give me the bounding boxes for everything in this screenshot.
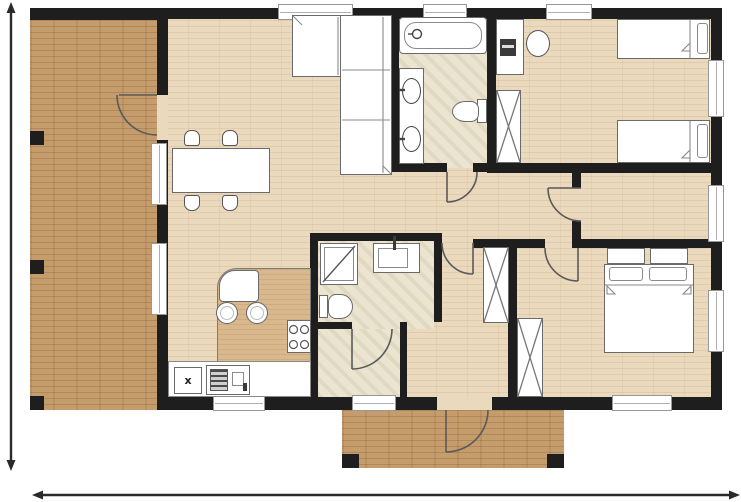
dining-chair	[184, 195, 200, 211]
entry-door-opening	[437, 397, 492, 410]
cooktop	[287, 320, 311, 353]
nightstand	[650, 248, 688, 264]
porch-post	[342, 454, 359, 468]
window	[213, 395, 265, 411]
sink-drainer	[210, 369, 228, 391]
breakfast-bar	[219, 270, 259, 302]
window	[151, 243, 167, 315]
wall-bathroom-bottom	[390, 163, 447, 172]
arrow-right-icon	[729, 491, 740, 500]
arrow-down-icon	[7, 460, 16, 471]
deck-door-opening	[157, 95, 168, 140]
pillow	[697, 124, 708, 158]
deck-post	[30, 260, 44, 274]
washbasin-inner	[378, 248, 408, 268]
dining-chair	[222, 195, 238, 211]
wall-showerroom-stub	[318, 322, 352, 329]
dining-table	[172, 148, 270, 193]
arrow-left-icon	[32, 491, 43, 500]
appliance-x: x	[174, 367, 202, 394]
window	[708, 60, 724, 117]
wardrobe	[496, 90, 521, 163]
nightstand	[607, 248, 645, 264]
wall-master-top	[578, 239, 722, 248]
pillow	[649, 267, 687, 281]
bathtub-inner	[404, 22, 482, 49]
wall-bathroom-right	[487, 16, 496, 163]
wall-showerroom-right	[434, 241, 442, 322]
toilet-bowl	[452, 101, 479, 122]
wash-basin	[402, 78, 421, 104]
wash-basin	[402, 126, 421, 152]
shower-room-vestibule-floor	[318, 329, 400, 397]
desk-chair	[526, 30, 550, 57]
wardrobe	[517, 318, 543, 397]
dining-chair	[222, 130, 238, 146]
wall-master-left	[508, 248, 517, 397]
sink-faucet	[243, 383, 247, 391]
sofa-chaise	[340, 15, 392, 175]
deck-post	[30, 396, 44, 410]
shower-inner	[324, 247, 354, 281]
window	[352, 395, 396, 411]
entry-porch	[342, 410, 564, 468]
toilet-bowl	[328, 294, 353, 319]
deck-terrace	[30, 8, 157, 410]
window	[546, 4, 592, 20]
wall-bedroom1-bottom	[487, 163, 722, 173]
basin-faucet	[393, 236, 396, 250]
porch-post	[547, 454, 564, 468]
wall-showerroom-top	[310, 233, 442, 241]
dining-chair	[184, 130, 200, 146]
pillow	[697, 23, 708, 54]
wall-exterior-left	[157, 8, 168, 410]
bar-stool	[246, 302, 268, 324]
arrow-up-icon	[7, 2, 16, 13]
window	[708, 290, 724, 352]
wall-vestibule-right	[400, 322, 407, 397]
wardrobe	[483, 247, 509, 323]
floor-plan: x	[0, 0, 741, 502]
deck-post	[30, 131, 44, 145]
deck-top-beam	[30, 8, 157, 20]
appliance-x-label: x	[184, 374, 191, 387]
desk-laptop-stripe	[502, 45, 514, 48]
window	[612, 395, 672, 411]
wall-master-top	[508, 239, 545, 248]
toilet-tank	[319, 295, 328, 318]
wall-showerroom-left	[310, 241, 318, 397]
pillow	[609, 267, 643, 281]
bar-stool	[216, 302, 238, 324]
wall-smallroom-left	[572, 173, 581, 188]
window	[708, 185, 724, 242]
window	[151, 143, 167, 205]
